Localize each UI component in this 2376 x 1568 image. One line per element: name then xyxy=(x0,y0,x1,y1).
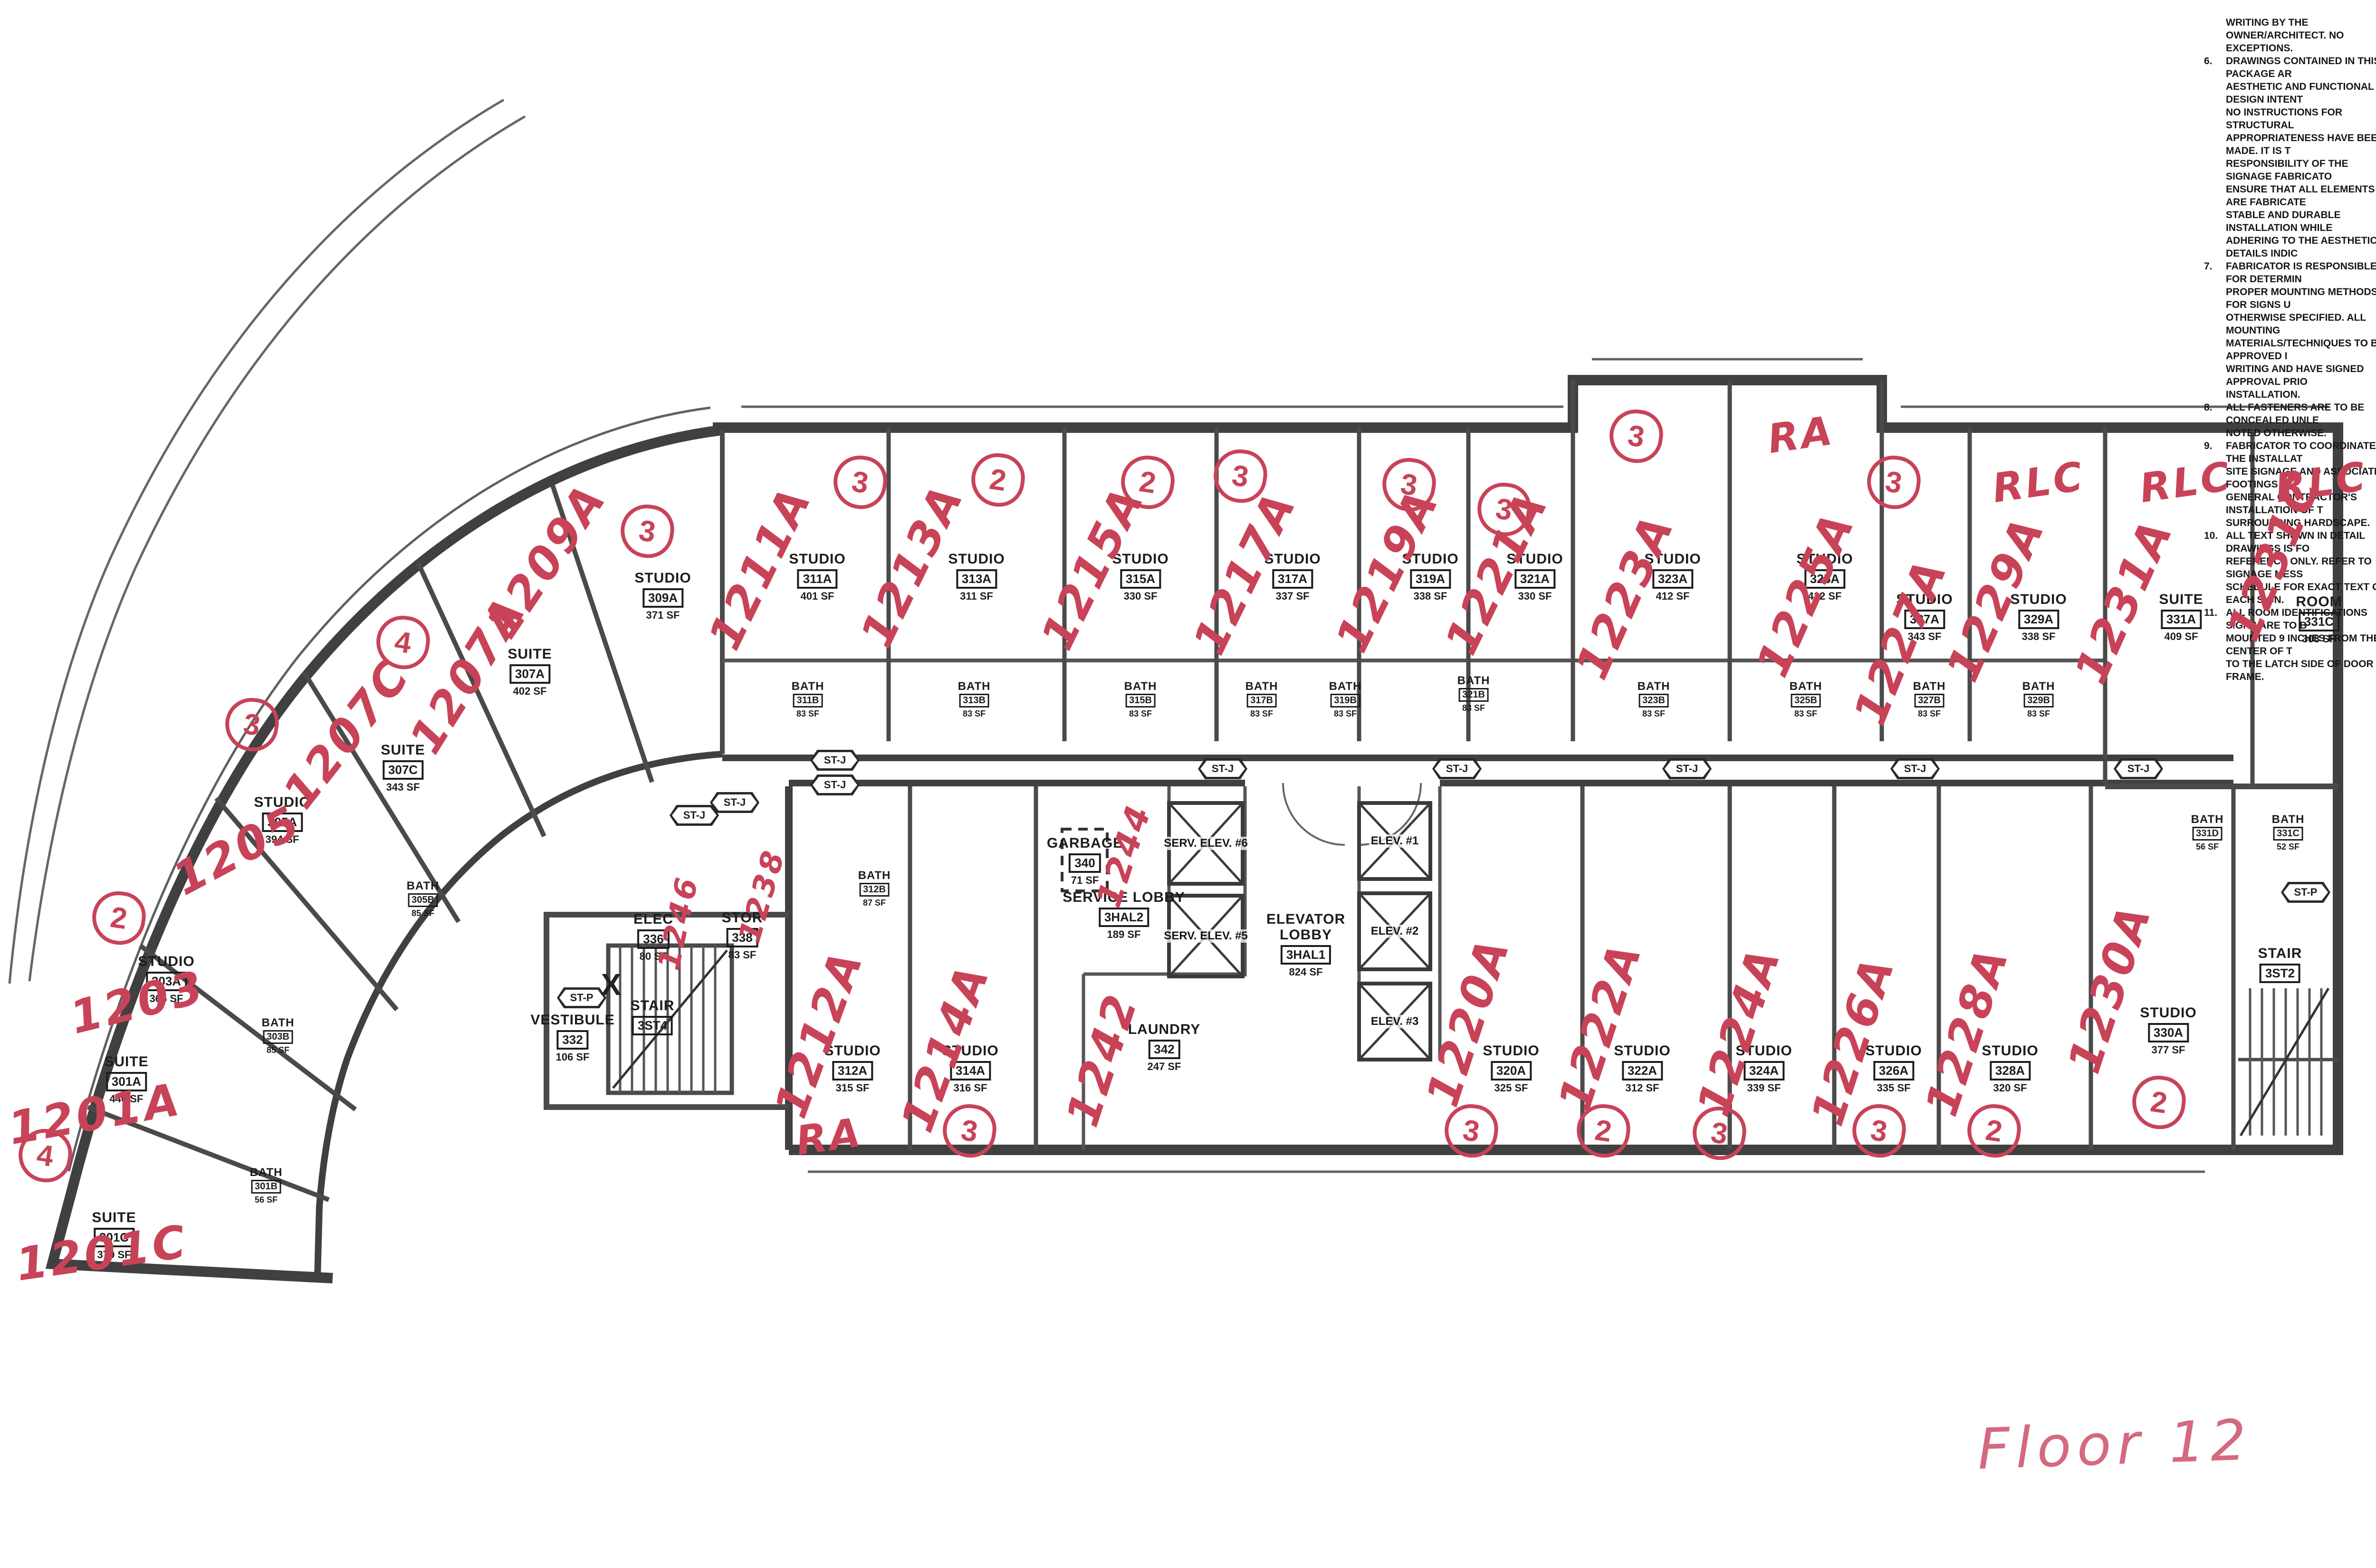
notes-line-text: NOTED OTHERWISE. xyxy=(2226,427,2376,440)
notes-line-text: ALL FASTENERS ARE TO BE CONCEALED UNLE xyxy=(2226,401,2376,427)
hex-marker-text: ST-P xyxy=(2294,886,2318,899)
room-type-label: BATH xyxy=(2191,813,2224,825)
hex-marker-text: ST-J xyxy=(824,754,846,766)
room-area-label: 87 SF xyxy=(858,898,891,908)
hex-marker-text: ST-J xyxy=(1212,763,1234,775)
bath-label: BATH331C52 SF xyxy=(2272,813,2305,852)
ra-mark: RA xyxy=(793,1109,865,1164)
room-type-label: BATH xyxy=(2022,680,2055,692)
notes-line-number: 7. xyxy=(2204,260,2226,286)
room-label: STUDIO328A320 SF xyxy=(1982,1043,2038,1094)
notes-line-number: 10. xyxy=(2204,529,2226,555)
notes-line-text: ADHERING TO THE AESTHETIC DETAILS INDIC xyxy=(2226,234,2376,260)
room-type-label: SUITE xyxy=(2159,592,2203,607)
room-number-tag: 313B xyxy=(959,694,989,708)
room-type-label: STAIR xyxy=(631,998,675,1013)
notes-line: RESPONSIBILITY OF THE SIGNAGE FABRICATO xyxy=(2204,157,2376,183)
notes-line-text: PROPER MOUNTING METHODS FOR SIGNS U xyxy=(2226,286,2376,311)
hex-marker-text: ST-J xyxy=(824,779,846,791)
room-area-label: 83 SF xyxy=(1913,709,1946,719)
room-label: ELEVATOR LOBBY3HAL1824 SF xyxy=(1266,911,1345,978)
floor-plan-sheet: WRITING BY THE OWNER/ARCHITECT. NOEXCEPT… xyxy=(0,0,2376,1568)
sign-location-hex-marker: ST-J xyxy=(810,750,860,771)
room-number-tag: 323B xyxy=(1638,694,1669,708)
bath-label: BATH327B83 SF xyxy=(1913,680,1946,719)
sign-location-hex-marker: ST-J xyxy=(1662,758,1712,779)
room-type-label: STUDIO xyxy=(948,551,1005,567)
room-type-label: BATH xyxy=(2272,813,2305,825)
notes-line: APPROPRIATENESS HAVE BEEN MADE. IT IS T xyxy=(2204,132,2376,157)
notes-line: 8.ALL FASTENERS ARE TO BE CONCEALED UNLE xyxy=(2204,401,2376,427)
room-type-label: BATH xyxy=(1638,680,1670,692)
room-area-label: 824 SF xyxy=(1266,966,1345,978)
room-label: SUITE331A409 SF xyxy=(2159,592,2203,643)
room-area-label: 315 SF xyxy=(824,1082,881,1094)
room-type-label: ELEVATOR LOBBY xyxy=(1266,911,1345,943)
notes-line-text: APPROPRIATENESS HAVE BEEN MADE. IT IS T xyxy=(2226,132,2376,157)
room-area-label: 402 SF xyxy=(508,685,552,698)
room-area-label: 83 SF xyxy=(2022,709,2055,719)
notes-line-number xyxy=(2204,234,2226,260)
notes-line: MATERIALS/TECHNIQUES TO BE APPROVED I xyxy=(2204,337,2376,363)
room-type-label: BATH xyxy=(858,870,891,881)
bath-label: BATH315B83 SF xyxy=(1124,680,1157,719)
room-number-tag: 312B xyxy=(859,883,890,897)
room-label: STUDIO309A371 SF xyxy=(634,570,691,621)
notes-line: TO THE LATCH SIDE OF DOOR FRAME. xyxy=(2204,658,2376,683)
room-area-label: 106 SF xyxy=(530,1051,614,1063)
notes-line: WRITING BY THE OWNER/ARCHITECT. NO xyxy=(2204,16,2376,42)
notes-line-number xyxy=(2204,632,2226,658)
notes-line-number xyxy=(2204,183,2226,209)
notes-line-text: NO INSTRUCTIONS FOR STRUCTURAL xyxy=(2226,106,2376,132)
room-area-label: 335 SF xyxy=(1865,1082,1922,1094)
notes-line-text: MATERIALS/TECHNIQUES TO BE APPROVED I xyxy=(2226,337,2376,363)
plan-walls-drawing xyxy=(0,0,2376,1568)
room-number-tag: 3HAL1 xyxy=(1281,945,1331,965)
notes-line-number xyxy=(2204,42,2226,55)
notes-line: ADHERING TO THE AESTHETIC DETAILS INDIC xyxy=(2204,234,2376,260)
room-area-label: 330 SF xyxy=(1112,590,1169,602)
notes-line-text: FABRICATOR IS RESPONSIBLE FOR DETERMIN xyxy=(2226,260,2376,286)
floor-annotation: Floor 12 xyxy=(1976,1407,2253,1482)
sign-location-hex-marker: ST-P xyxy=(557,987,606,1008)
notes-line-number xyxy=(2204,157,2226,183)
room-type-label: BATH xyxy=(262,1017,295,1029)
room-number-tag: 301B xyxy=(251,1180,281,1194)
room-type-label: BATH xyxy=(1457,675,1490,687)
bath-label: BATH311B83 SF xyxy=(792,680,824,719)
room-number-tag: 321B xyxy=(1458,688,1489,702)
room-area-label: 371 SF xyxy=(634,609,691,621)
hex-marker-text: ST-J xyxy=(724,796,746,809)
notes-line: 7.FABRICATOR IS RESPONSIBLE FOR DETERMIN xyxy=(2204,260,2376,286)
notes-line-text: DRAWINGS CONTAINED IN THIS PACKAGE AR xyxy=(2226,55,2376,80)
sign-location-hex-marker: ST-J xyxy=(1890,758,1940,779)
room-number-tag: 317A xyxy=(1272,569,1313,589)
room-area-label: 83 SF xyxy=(1638,709,1670,719)
notes-line-text: EXCEPTIONS. xyxy=(2226,42,2376,55)
room-type-label: VESTIBULE xyxy=(530,1012,614,1028)
room-area-label: 338 SF xyxy=(1402,590,1458,602)
room-area-label: 312 SF xyxy=(1614,1082,1670,1094)
notes-line-number xyxy=(2204,16,2226,42)
room-number-tag: 331D xyxy=(2192,827,2223,841)
bath-label: BATH319B83 SF xyxy=(1329,680,1362,719)
room-number-tag: 311A xyxy=(797,569,838,589)
sign-location-hex-marker: ST-J xyxy=(810,774,860,795)
room-number-tag: 311B xyxy=(793,694,823,708)
notes-line-number xyxy=(2204,132,2226,157)
room-type-label: STUDIO xyxy=(2140,1005,2196,1021)
room-area-label: 83 SF xyxy=(1790,709,1822,719)
notes-line-number xyxy=(2204,388,2226,401)
room-number-tag: 315A xyxy=(1120,569,1161,589)
room-number-tag: 3ST4 xyxy=(632,1016,673,1035)
room-number-tag: 322A xyxy=(1622,1061,1663,1080)
room-type-label: BATH xyxy=(250,1166,283,1178)
room-number-tag: 329B xyxy=(2023,694,2054,708)
notes-line-text: ENSURE THAT ALL ELEMENTS ARE FABRICATE xyxy=(2226,183,2376,209)
room-area-label: 56 SF xyxy=(2191,842,2224,852)
room-area-label: 311 SF xyxy=(948,590,1005,602)
room-type-label: BATH xyxy=(1913,680,1946,692)
room-type-label: SUITE xyxy=(104,1054,148,1070)
notes-line: INSTALLATION. xyxy=(2204,388,2376,401)
room-area-label: 83 SF xyxy=(958,709,991,719)
bath-label: BATH301B56 SF xyxy=(250,1166,283,1205)
room-area-label: 325 SF xyxy=(1483,1082,1539,1094)
notes-line: NO INSTRUCTIONS FOR STRUCTURAL xyxy=(2204,106,2376,132)
room-type-label: BATH xyxy=(958,680,991,692)
bath-label: BATH305B85 SF xyxy=(407,880,440,918)
notes-line: ENSURE THAT ALL ELEMENTS ARE FABRICATE xyxy=(2204,183,2376,209)
room-label: STAIR3ST2 xyxy=(2258,946,2302,983)
bath-label: BATH317B83 SF xyxy=(1245,680,1278,719)
notes-line: OTHERWISE SPECIFIED. ALL MOUNTING xyxy=(2204,311,2376,337)
room-number-tag: 331C xyxy=(2299,612,2339,631)
room-number-tag: 342 xyxy=(1148,1040,1180,1059)
room-area-label: 338 SF xyxy=(2010,631,2067,643)
room-label: ROOM331C308 SF xyxy=(2296,594,2342,645)
sign-location-hex-marker: ST-J xyxy=(2114,758,2163,779)
room-number-tag: 328A xyxy=(1990,1061,2031,1080)
notes-line: WRITING AND HAVE SIGNED APPROVAL PRIO xyxy=(2204,363,2376,388)
room-number-tag: 319A xyxy=(1410,569,1451,589)
room-number-tag: 340 xyxy=(1069,853,1101,873)
bath-label: BATH331D56 SF xyxy=(2191,813,2224,852)
notes-line: MOUNTED 9 INCHES FROM THE CENTER OF T xyxy=(2204,632,2376,658)
notes-line-number xyxy=(2204,286,2226,311)
notes-line-number xyxy=(2204,80,2226,106)
room-area-label: 320 SF xyxy=(1982,1082,2038,1094)
notes-line-text: WRITING BY THE OWNER/ARCHITECT. NO xyxy=(2226,16,2376,42)
room-number-tag: 332 xyxy=(556,1030,588,1050)
room-type-label: STUDIO xyxy=(1483,1043,1539,1059)
room-label: STUDIO322A312 SF xyxy=(1614,1043,1670,1094)
notes-line-number xyxy=(2204,209,2226,234)
room-area-label: 377 SF xyxy=(2140,1044,2196,1056)
room-area-label: 409 SF xyxy=(2159,631,2203,643)
room-number-tag: 317B xyxy=(1246,694,1277,708)
room-area-label: 308 SF xyxy=(2296,633,2342,645)
notes-line-number: 8. xyxy=(2204,401,2226,427)
hex-marker-text: ST-J xyxy=(1904,763,1926,775)
bath-label: BATH321B83 SF xyxy=(1457,675,1490,713)
bath-label: BATH303B85 SF xyxy=(262,1017,295,1055)
room-number-tag: 307C xyxy=(383,760,423,780)
room-number-tag: 329A xyxy=(2018,610,2059,629)
room-number-tag: 305B xyxy=(408,893,438,907)
room-type-label: STAIR xyxy=(2258,946,2302,961)
hex-marker-text: ST-J xyxy=(1676,763,1698,775)
notes-line-text: AESTHETIC AND FUNCTIONAL DESIGN INTENT xyxy=(2226,80,2376,106)
notes-line-number xyxy=(2204,106,2226,132)
room-area-label: 83 SF xyxy=(1329,709,1362,719)
notes-line-number xyxy=(2204,337,2226,363)
room-type-label: STUDIO xyxy=(634,570,691,586)
room-label: STUDIO311A401 SF xyxy=(789,551,845,602)
room-type-label: BATH xyxy=(1124,680,1157,692)
room-label: STUDIO320A325 SF xyxy=(1483,1043,1539,1094)
hex-marker-text: ST-J xyxy=(2127,763,2149,775)
room-number-tag: 309A xyxy=(642,588,683,608)
sign-location-hex-marker: ST-J xyxy=(1432,758,1482,779)
room-label: SUITE307C343 SF xyxy=(381,742,425,794)
room-number-tag: 326A xyxy=(1873,1061,1914,1080)
room-type-label: ROOM xyxy=(2296,594,2342,610)
notes-line: AESTHETIC AND FUNCTIONAL DESIGN INTENT xyxy=(2204,80,2376,106)
room-area-label: 83 SF xyxy=(1245,709,1278,719)
room-label: STUDIO313A311 SF xyxy=(948,551,1005,602)
notes-line-number xyxy=(2204,363,2226,388)
room-number-tag: 331C xyxy=(2273,827,2303,841)
sign-location-hex-marker: ST-J xyxy=(670,805,719,826)
hex-marker-text: ST-P xyxy=(570,992,594,1004)
notes-line-text: STABLE AND DURABLE INSTALLATION WHILE xyxy=(2226,209,2376,234)
notes-line-text: INSTALLATION. xyxy=(2226,388,2376,401)
room-number-tag: 315B xyxy=(1125,694,1156,708)
hex-marker-text: ST-J xyxy=(1446,763,1468,775)
sign-location-hex-marker: ST-J xyxy=(710,792,759,813)
elevator-label: SERV. ELEV. #5 xyxy=(1162,929,1250,943)
room-area-label: 83 SF xyxy=(1457,703,1490,713)
room-number-tag: 313A xyxy=(956,569,997,589)
room-type-label: BATH xyxy=(1245,680,1278,692)
room-area-label: 337 SF xyxy=(1264,590,1321,602)
notes-line-text: WRITING AND HAVE SIGNED APPROVAL PRIO xyxy=(2226,363,2376,388)
elevator-label: ELEV. #3 xyxy=(1369,1015,1421,1028)
room-number-tag: 327B xyxy=(1914,694,1945,708)
notes-line-text: OTHERWISE SPECIFIED. ALL MOUNTING xyxy=(2226,311,2376,337)
room-area-label: 85 SF xyxy=(262,1045,295,1055)
bath-label: BATH323B83 SF xyxy=(1638,680,1670,719)
room-number-tag: 330A xyxy=(2148,1023,2189,1042)
room-area-label: 83 SF xyxy=(722,949,763,961)
notes-line: STABLE AND DURABLE INSTALLATION WHILE xyxy=(2204,209,2376,234)
room-number-tag: 307A xyxy=(509,664,550,684)
room-number-tag: 312A xyxy=(832,1061,873,1080)
bath-label: BATH329B83 SF xyxy=(2022,680,2055,719)
notes-line-number xyxy=(2204,427,2226,440)
x-mark: X xyxy=(601,967,622,1002)
room-number-tag: 3ST2 xyxy=(2260,964,2300,983)
hex-marker-text: ST-J xyxy=(683,809,705,822)
room-area-label: 83 SF xyxy=(792,709,824,719)
room-area-label: 83 SF xyxy=(1124,709,1157,719)
notes-line-text: RESPONSIBILITY OF THE SIGNAGE FABRICATO xyxy=(2226,157,2376,183)
room-label: STUDIO330A377 SF xyxy=(2140,1005,2196,1056)
notes-line-number xyxy=(2204,555,2226,581)
notes-line-number xyxy=(2204,581,2226,606)
elevator-label: ELEV. #1 xyxy=(1369,834,1421,848)
notes-line-number: 6. xyxy=(2204,55,2226,80)
notes-line-number xyxy=(2204,658,2226,683)
notes-line: PROPER MOUNTING METHODS FOR SIGNS U xyxy=(2204,286,2376,311)
room-type-label: BATH xyxy=(1329,680,1362,692)
bath-label: BATH325B83 SF xyxy=(1790,680,1822,719)
notes-line-number xyxy=(2204,516,2226,529)
room-type-label: STUDIO xyxy=(789,551,845,567)
elevator-label: ELEV. #2 xyxy=(1369,925,1421,938)
room-type-label: STUDIO xyxy=(1982,1043,2038,1059)
room-area-label: 401 SF xyxy=(789,590,845,602)
bath-label: BATH313B83 SF xyxy=(958,680,991,719)
notes-line-number xyxy=(2204,311,2226,337)
ra-mark: RA xyxy=(1765,407,1837,462)
notes-line-text: TO THE LATCH SIDE OF DOOR FRAME. xyxy=(2226,658,2376,683)
elevator-label: SERV. ELEV. #6 xyxy=(1162,837,1250,850)
room-area-label: 52 SF xyxy=(2272,842,2305,852)
room-type-label: BATH xyxy=(407,880,440,892)
room-area-label: 56 SF xyxy=(250,1195,283,1205)
room-number-tag: 320A xyxy=(1491,1061,1532,1080)
notes-line: EXCEPTIONS. xyxy=(2204,42,2376,55)
room-number-tag: 319B xyxy=(1330,694,1360,708)
sign-location-hex-marker: ST-P xyxy=(2281,882,2330,903)
room-number-tag: 325B xyxy=(1791,694,1821,708)
room-type-label: STUDIO xyxy=(1614,1043,1670,1059)
notes-line: 6.DRAWINGS CONTAINED IN THIS PACKAGE AR xyxy=(2204,55,2376,80)
room-number-tag: 303B xyxy=(263,1030,293,1044)
sign-location-hex-marker: ST-J xyxy=(1198,758,1247,779)
bath-label: BATH312B87 SF xyxy=(858,870,891,908)
room-area-label: 343 SF xyxy=(381,781,425,794)
room-type-label: BATH xyxy=(792,680,824,692)
room-label: VESTIBULE332106 SF xyxy=(530,1012,614,1063)
notes-line: NOTED OTHERWISE. xyxy=(2204,427,2376,440)
room-label: SUITE307A402 SF xyxy=(508,646,552,698)
room-label: STAIR3ST4 xyxy=(631,998,675,1035)
room-number-tag: 331A xyxy=(2161,610,2202,629)
room-area-label: 85 SF xyxy=(407,908,440,918)
room-area-label: 247 SF xyxy=(1128,1061,1201,1073)
